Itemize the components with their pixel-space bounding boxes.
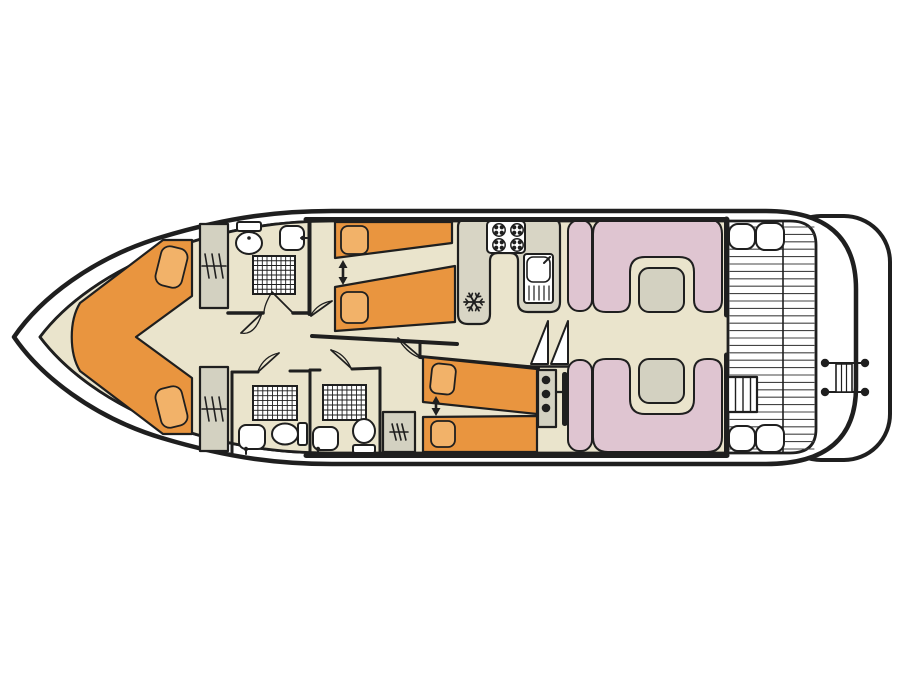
saloon-table (639, 359, 684, 403)
pillow (341, 226, 368, 254)
toilet-bowl (272, 424, 298, 445)
sink-basin (239, 425, 265, 449)
pillow (341, 292, 368, 323)
pillow (429, 363, 456, 395)
sink-tap-dot (316, 447, 320, 451)
deck-seat (729, 426, 755, 451)
helm-instrument-dots (542, 376, 551, 413)
deck-seat (756, 223, 784, 250)
toilet-flush-dot (247, 236, 251, 240)
toilet-tank (237, 222, 261, 231)
deck-seat (756, 425, 784, 452)
sink-tap-dot (244, 447, 248, 451)
wall (352, 368, 380, 369)
saloon-bench (568, 360, 592, 451)
toilet-bowl (236, 232, 262, 254)
shower-tray (323, 385, 366, 420)
pillow (431, 421, 455, 447)
saloon-bench (568, 220, 592, 311)
toilet-tank (298, 423, 307, 445)
toilet-tank (353, 445, 375, 453)
shower-tray (253, 256, 295, 294)
saloon-table (639, 268, 684, 312)
sink-basin (313, 427, 338, 450)
boat-floorplan (0, 0, 900, 675)
shower-tray (253, 386, 297, 420)
boat-floorplan-svg (0, 0, 900, 675)
stern-ladder (836, 364, 852, 392)
deck-seat (729, 224, 755, 249)
toilet-bowl (353, 419, 375, 443)
steering-wheel (562, 372, 568, 426)
sink-tap-dot (301, 236, 306, 241)
